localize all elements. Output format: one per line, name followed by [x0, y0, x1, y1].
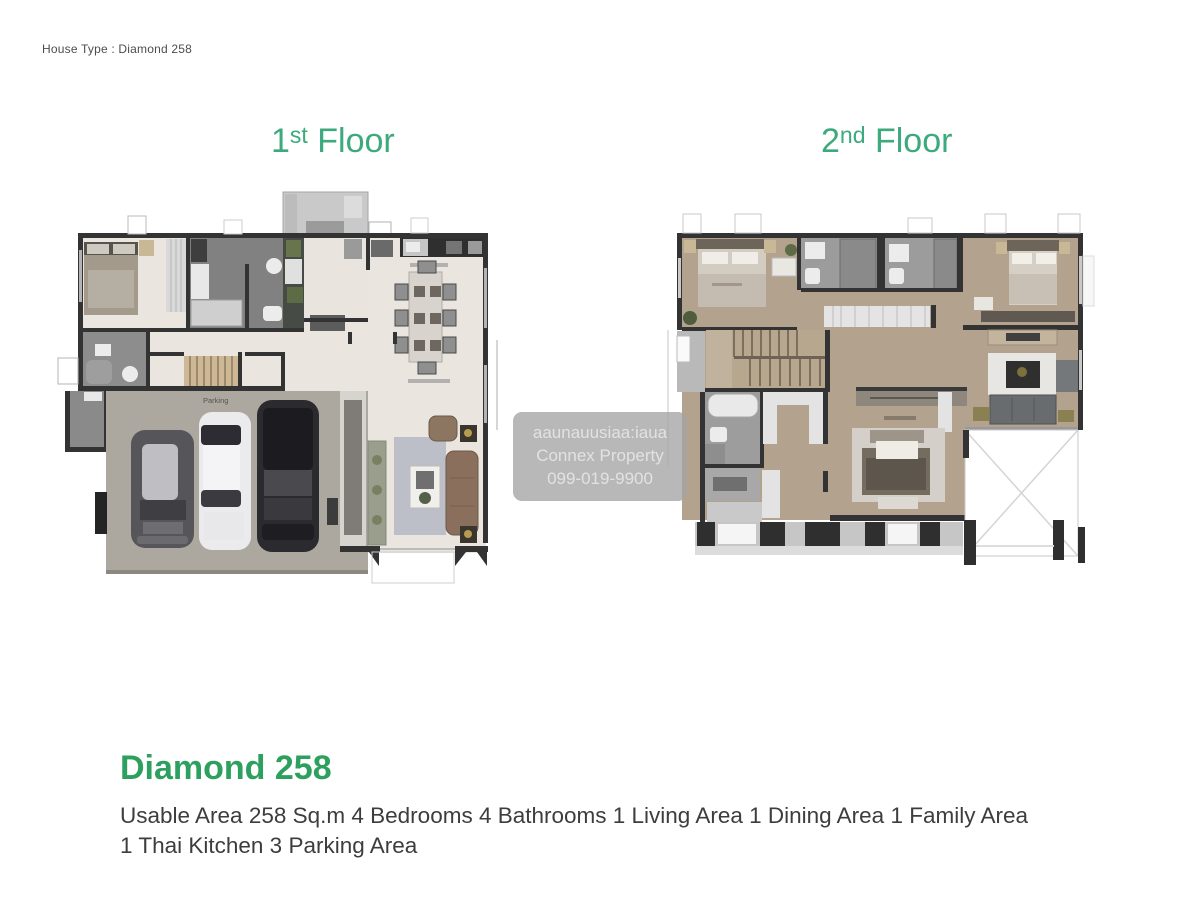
svg-text:Parking: Parking — [203, 396, 228, 405]
